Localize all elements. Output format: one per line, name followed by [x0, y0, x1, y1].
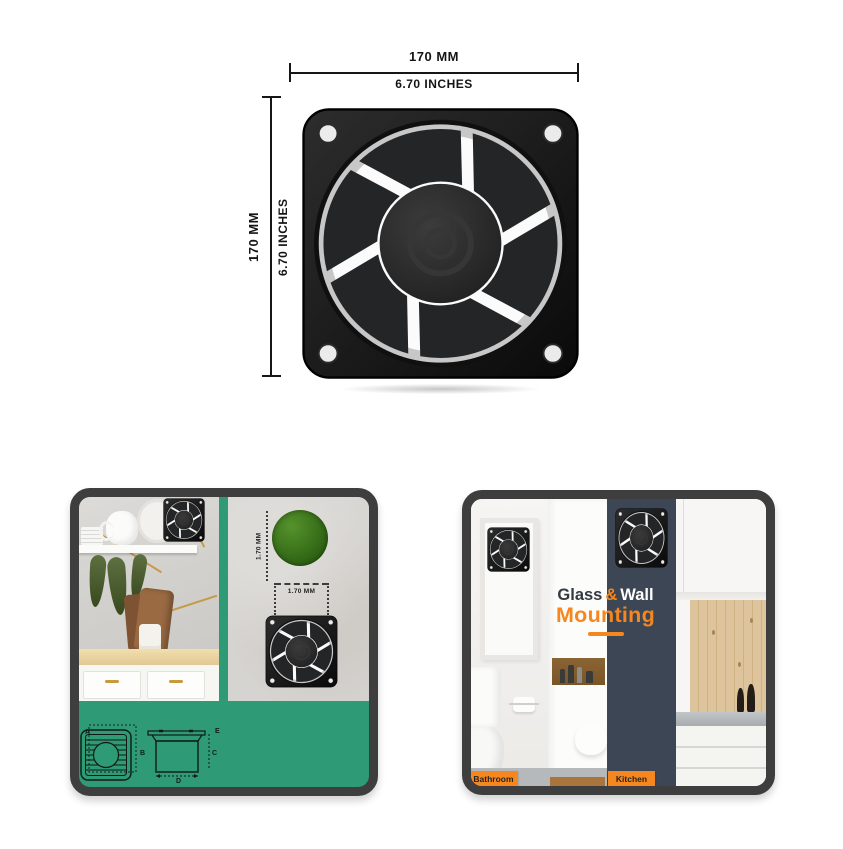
wall-mounted-fan-image: [615, 508, 668, 568]
teapot: [106, 511, 138, 545]
diagram-label-e: E: [215, 728, 220, 735]
glass-mounted-fan-image: [487, 527, 530, 572]
wall-mounted-fan-image: [163, 498, 205, 542]
wall-shelf: [79, 545, 197, 553]
dimension-top-line: [290, 72, 578, 74]
cabinet-front: [79, 665, 219, 701]
dimension-top-mm: 170 MM: [290, 49, 578, 64]
dimension-left-mm: 170 MM: [246, 97, 261, 377]
kitchen-scene: [676, 499, 766, 786]
wash-basin: [575, 723, 607, 755]
side-view-drawing: [147, 724, 213, 780]
dimension-left-line: [270, 97, 272, 377]
hanging-herbs: [87, 555, 107, 608]
countertop: [79, 649, 219, 665]
pepper-grinder: [737, 688, 744, 712]
diagram-label-d: D: [176, 778, 181, 785]
toilet: [471, 667, 501, 727]
dimension-left-inches: 6.70 INCHES: [276, 97, 290, 377]
horizontal-dimension-line: [275, 583, 328, 585]
card-heading: Glass&Wall Mounting: [543, 587, 668, 636]
spacing-fan-image: [265, 615, 338, 688]
dimension-top-inches: 6.70 INCHES: [290, 77, 578, 91]
heading-word-wall: Wall: [620, 586, 653, 604]
mounting-card: Glass&Wall Mounting Bathroom Kitchen: [462, 490, 775, 795]
heading-word-mounting: Mounting: [543, 604, 668, 627]
floor-mat: [550, 777, 605, 786]
spacing-diagram-photo: 1.70 MM 1.70 MM: [228, 497, 369, 701]
shelf-alcove: [552, 658, 605, 685]
diagram-label-b: B: [140, 750, 145, 757]
product-infographic: 170 MM 6.70 INCHES 170 MM 6.70 INCHES: [0, 0, 843, 849]
toilet-paper-holder: [513, 697, 535, 712]
vertical-dimension-line: [266, 511, 268, 581]
diagram-label-a: A: [85, 729, 90, 736]
diagram-label-c: C: [212, 750, 217, 757]
heading-ampersand: &: [605, 586, 617, 604]
fan-reflection-shadow: [306, 382, 575, 396]
installation-card: 1.70 MM 1.70 MM: [70, 488, 378, 796]
kitchen-drawers: [676, 726, 766, 786]
hero-fan-image: [300, 106, 581, 381]
kitchen-tag: Kitchen: [608, 771, 655, 787]
vent-hole-greenery: [272, 510, 328, 566]
vertical-dimension-label: 1.70 MM: [254, 511, 264, 581]
bathroom-tag: Bathroom: [469, 771, 518, 787]
heading-underline: [588, 632, 624, 636]
kitchen-photo: [79, 497, 219, 701]
kitchen-countertop: [676, 712, 766, 726]
pepper-grinder: [747, 684, 755, 712]
heading-word-glass: Glass: [557, 586, 602, 604]
horizontal-dimension-label: 1.70 MM: [275, 588, 328, 595]
